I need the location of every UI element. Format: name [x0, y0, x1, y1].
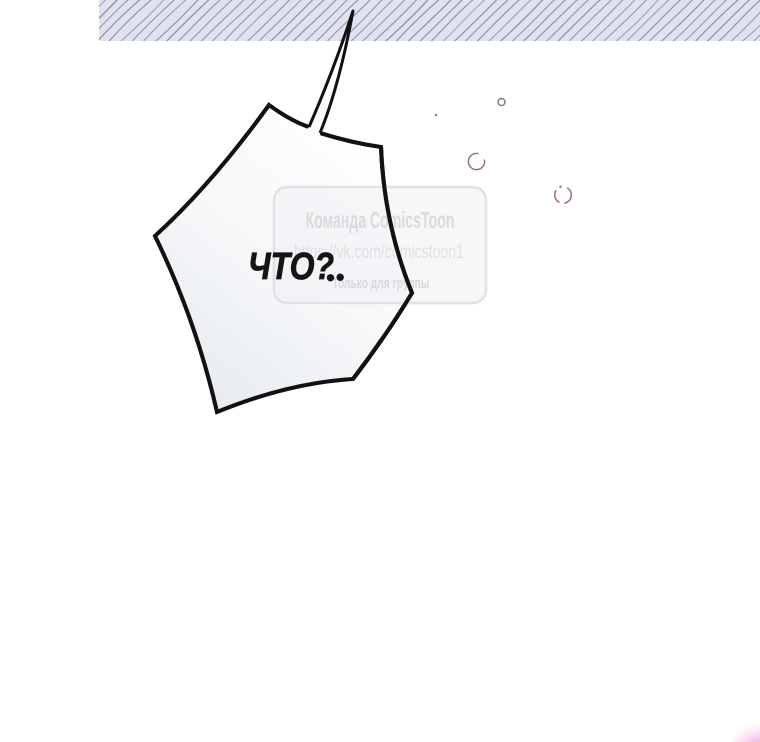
svg-text:Только для группы: Только для группы [333, 276, 430, 292]
svg-text:Команда ComicsToon: Команда ComicsToon [306, 207, 455, 233]
svg-text:ЧТО?: ЧТО? [248, 246, 334, 288]
